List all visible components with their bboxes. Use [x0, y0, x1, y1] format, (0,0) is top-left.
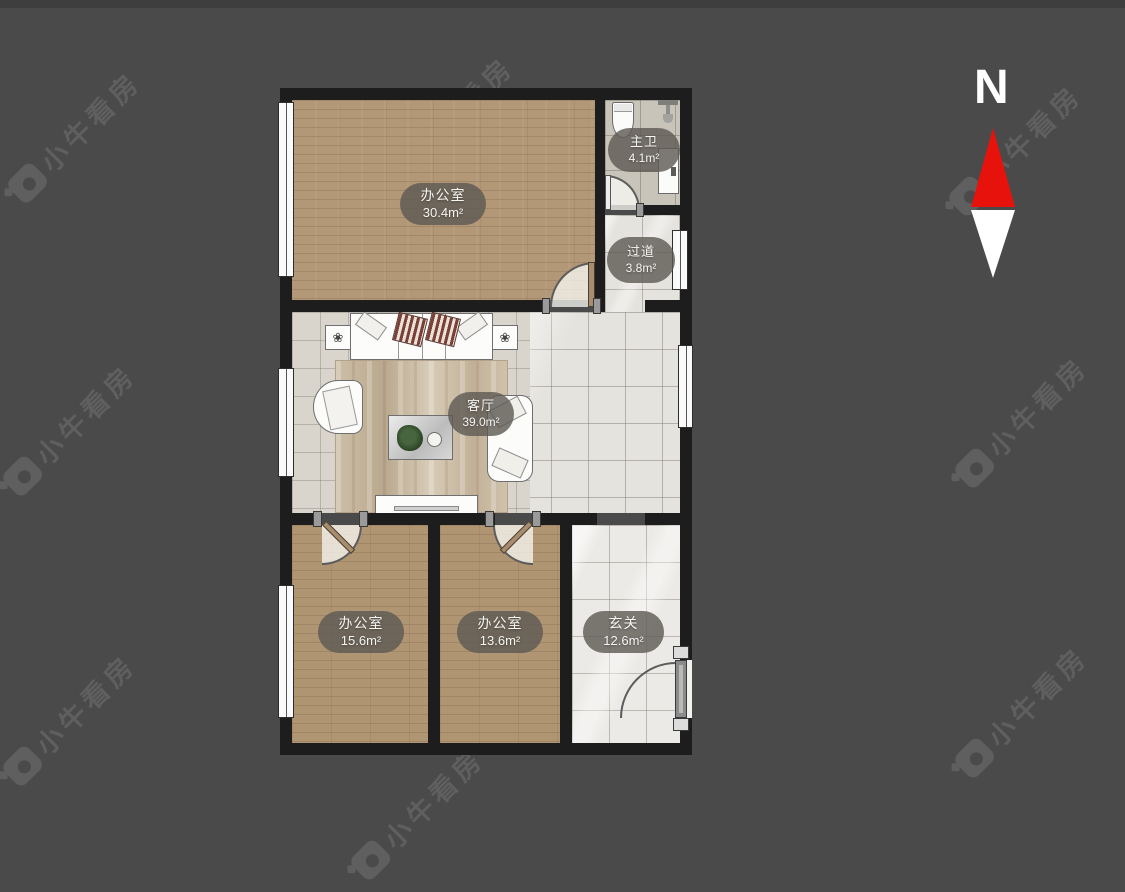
room-label-living: 客厅 39.0m² — [448, 392, 514, 436]
room-label-office-top: 办公室 30.4m² — [400, 183, 486, 225]
watermark: 小牛看房 — [948, 346, 1095, 493]
watermark: 小牛看房 — [0, 644, 144, 791]
wall-living-south-2 — [360, 513, 495, 525]
watermark: 小牛看房 — [948, 636, 1095, 783]
wall-between-offices — [428, 525, 440, 743]
watermark-text: 小牛看房 — [25, 644, 143, 762]
room-area: 30.4m² — [423, 205, 463, 221]
watermark-text: 小牛看房 — [977, 636, 1095, 754]
wall-corridor-stub — [645, 300, 692, 312]
door-frame-cap — [359, 511, 368, 527]
screenshot-root: { "background": { "color": "#4a4a4a", "t… — [0, 0, 1125, 844]
watermark: 小牛看房 — [942, 74, 1089, 221]
room-area: 15.6m² — [341, 633, 381, 649]
window-left-living — [278, 368, 294, 477]
room-area: 3.8m² — [626, 261, 657, 276]
watermark: 小牛看房 — [0, 354, 144, 501]
room-area: 13.6m² — [480, 633, 520, 649]
sofa-pillow-left-icon — [355, 311, 387, 340]
watermark-logo-icon — [952, 735, 997, 780]
side-table-left: ❀ — [325, 325, 351, 350]
room-label-office-left: 办公室 15.6m² — [318, 611, 404, 653]
window-left-bottom — [278, 585, 294, 718]
watermark-text: 小牛看房 — [977, 346, 1095, 464]
room-name: 玄关 — [609, 615, 639, 633]
room-name: 办公室 — [421, 187, 466, 205]
wall-top — [280, 88, 692, 100]
window-left-top — [278, 102, 294, 277]
wall-bath-bottom — [638, 205, 680, 215]
shower-fixture-icon — [658, 100, 678, 124]
sofa-pillow-right-icon — [456, 311, 488, 340]
room-area: 4.1m² — [629, 151, 660, 166]
door-leaf-bathroom — [605, 175, 611, 210]
room-name: 办公室 — [339, 615, 384, 633]
room-area: 12.6m² — [603, 633, 643, 649]
room-label-bathroom: 主卫 4.1m² — [608, 128, 680, 172]
room-area: 39.0m² — [462, 415, 499, 430]
plant-icon — [397, 425, 423, 451]
armchair — [313, 380, 363, 434]
door-frame-cap — [673, 718, 689, 731]
room-label-office-mid: 办公室 13.6m² — [457, 611, 543, 653]
watermark-text: 小牛看房 — [30, 61, 148, 179]
door-frame-cap — [532, 511, 541, 527]
wall-office-bath — [595, 100, 605, 312]
room-name: 主卫 — [630, 134, 658, 150]
wall-office-top-south — [280, 300, 550, 312]
tv-stand — [375, 495, 478, 515]
watermark-logo-icon — [0, 453, 45, 498]
door-frame-cap — [593, 298, 601, 314]
door-leaf-foyer — [675, 660, 687, 718]
side-table-right: ❀ — [492, 325, 518, 350]
wall-foyer-stub — [645, 513, 692, 525]
room-name: 客厅 — [467, 398, 495, 414]
watermark: 小牛看房 — [1, 61, 148, 208]
cup-icon — [427, 432, 442, 447]
door-frame-cap — [673, 646, 689, 659]
door-frame-cap — [542, 298, 550, 314]
compass-arrow-icon — [971, 126, 1015, 280]
sofa — [350, 313, 493, 360]
top-strip — [0, 0, 1125, 8]
watermark-logo-icon — [5, 160, 50, 205]
room-label-corridor: 过道 3.8m² — [607, 237, 675, 283]
door-frame-cap — [485, 511, 494, 527]
coffee-table — [388, 415, 453, 460]
room-name: 过道 — [627, 244, 655, 260]
door-frame-cap — [313, 511, 322, 527]
wall-living-south-3 — [537, 513, 597, 525]
window-right-hallway — [678, 345, 693, 428]
watermark-logo-icon — [0, 743, 45, 788]
floorplan: ❀ ❀ — [280, 88, 692, 755]
watermark-text: 小牛看房 — [25, 354, 143, 472]
watermark: 小牛看房 — [344, 738, 491, 885]
compass-north-label: N — [974, 60, 1009, 115]
watermark-logo-icon — [952, 445, 997, 490]
sofa-cushion-striped — [425, 312, 461, 347]
wall-office-foyer — [560, 525, 572, 743]
door-frame-cap — [636, 203, 644, 217]
room-label-foyer: 玄关 12.6m² — [583, 611, 664, 653]
room-name: 办公室 — [478, 615, 523, 633]
wall-bottom — [280, 743, 692, 755]
watermark-text: 小牛看房 — [373, 738, 491, 856]
